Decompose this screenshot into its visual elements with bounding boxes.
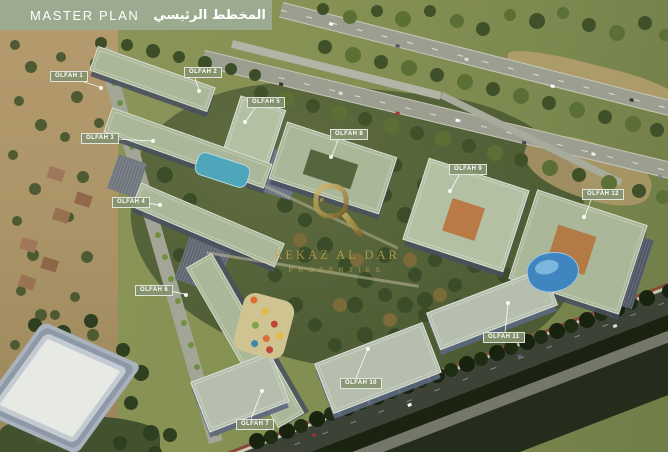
brand-name: REKAZ AL DAR [252,248,422,263]
brand-watermark: REKAZ AL DAR PROPERTIES [252,180,422,274]
label-olfah-4: OLFAH 4 [112,197,150,208]
label-olfah-7: OLFAH 7 [236,419,274,430]
label-olfah-12: OLFAH 12 [582,189,624,200]
brand-tagline: PROPERTIES [252,267,422,274]
rekaz-monogram-icon [308,180,366,240]
label-olfah-1: OLFAH 1 [50,71,88,82]
label-olfah-3: OLFAH 3 [81,133,119,144]
title-banner: MASTER PLAN المخطط الرئيسي [0,0,272,30]
label-olfah-9: OLFAH 9 [449,164,487,175]
label-olfah-5: OLFAH 5 [247,97,285,108]
label-olfah-6: OLFAH 6 [135,285,173,296]
label-olfah-8: OLFAH 8 [330,129,368,140]
title-arabic: المخطط الرئيسي [153,8,266,23]
label-olfah-10: OLFAH 10 [340,378,382,389]
master-plan-scene: OLFAH 1 OLFAH 2 OLFAH 3 OLFAH 4 OLFAH 5 … [0,0,668,452]
label-olfah-2: OLFAH 2 [184,67,222,78]
label-olfah-11: OLFAH 11 [483,332,525,343]
title-english: MASTER PLAN [30,8,139,23]
